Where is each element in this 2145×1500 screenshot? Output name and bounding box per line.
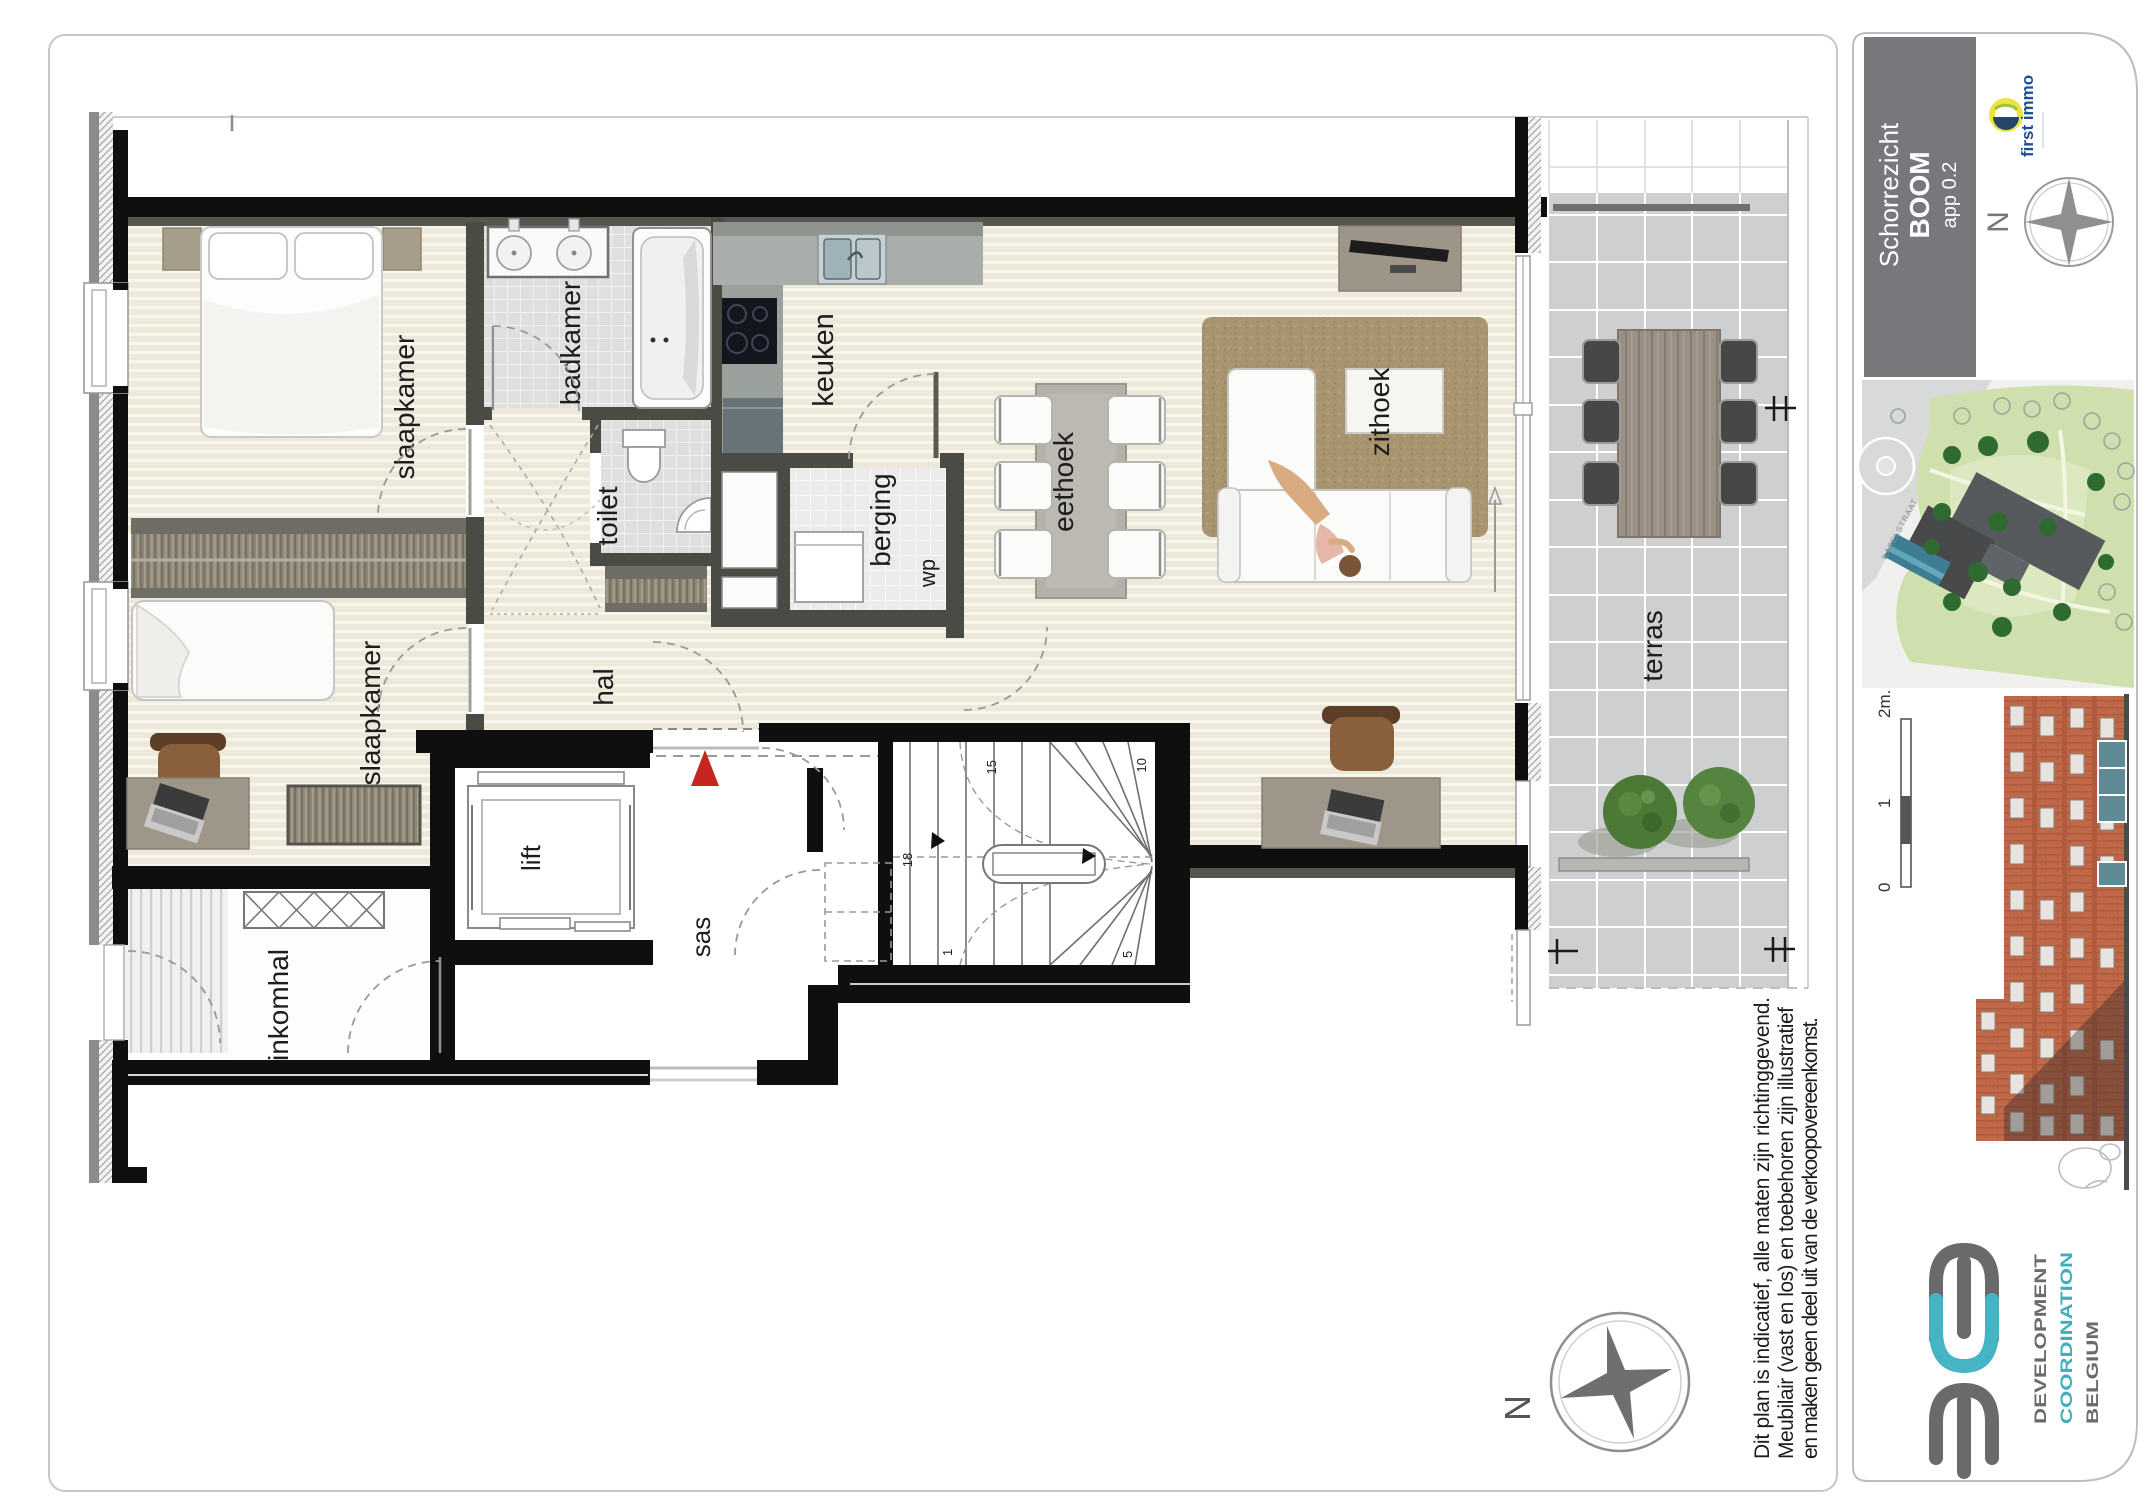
svg-text:lift: lift (516, 844, 546, 871)
svg-text:first immo: first immo (2018, 75, 2037, 157)
svg-text:berging: berging (865, 473, 896, 566)
svg-text:BOOM: BOOM (1904, 151, 1935, 238)
svg-text:18: 18 (900, 853, 915, 867)
svg-text:Schorrezicht: Schorrezicht (1874, 122, 1904, 267)
svg-text:en maken geen deel uit van de: en maken geen deel uit van de verkoopove… (1799, 1017, 1822, 1459)
svg-text:zithoek: zithoek (1364, 367, 1395, 457)
svg-text:5: 5 (1120, 951, 1135, 958)
svg-text:eethoek: eethoek (1048, 431, 1079, 532)
svg-text:N: N (1982, 211, 2015, 233)
svg-text:hal: hal (588, 668, 619, 705)
svg-text:DEVELOPMENT: DEVELOPMENT (2031, 1253, 2050, 1424)
svg-text:1: 1 (940, 949, 955, 956)
svg-text:N: N (1497, 1395, 1538, 1421)
svg-text:15: 15 (984, 760, 999, 774)
svg-text:slaapkamer: slaapkamer (389, 335, 420, 480)
svg-text:Dit plan is indicatief, alle m: Dit plan is indicatief, alle maten zijn … (1751, 997, 1774, 1459)
svg-text:Meubilair (vast en los) en toe: Meubilair (vast en los) en toebehoren zi… (1775, 1007, 1798, 1459)
svg-text:sas: sas (686, 917, 716, 957)
svg-text:0: 0 (1875, 883, 1894, 892)
svg-text:terras: terras (1637, 610, 1668, 682)
svg-text:BELGIUM: BELGIUM (2083, 1321, 2102, 1424)
svg-text:2m.: 2m. (1875, 690, 1894, 718)
svg-text:1: 1 (1875, 799, 1894, 808)
svg-text:10: 10 (1134, 758, 1149, 772)
svg-text:badkamer: badkamer (555, 281, 586, 406)
svg-text:wp: wp (915, 559, 940, 588)
svg-text:slaapkamer: slaapkamer (355, 641, 386, 786)
svg-text:keuken: keuken (808, 313, 840, 407)
svg-text:toilet: toilet (592, 486, 623, 545)
svg-text:inkomhal: inkomhal (263, 949, 294, 1061)
svg-text:COORDINATION: COORDINATION (2057, 1252, 2076, 1424)
svg-text:app 0.2: app 0.2 (1939, 162, 1961, 229)
